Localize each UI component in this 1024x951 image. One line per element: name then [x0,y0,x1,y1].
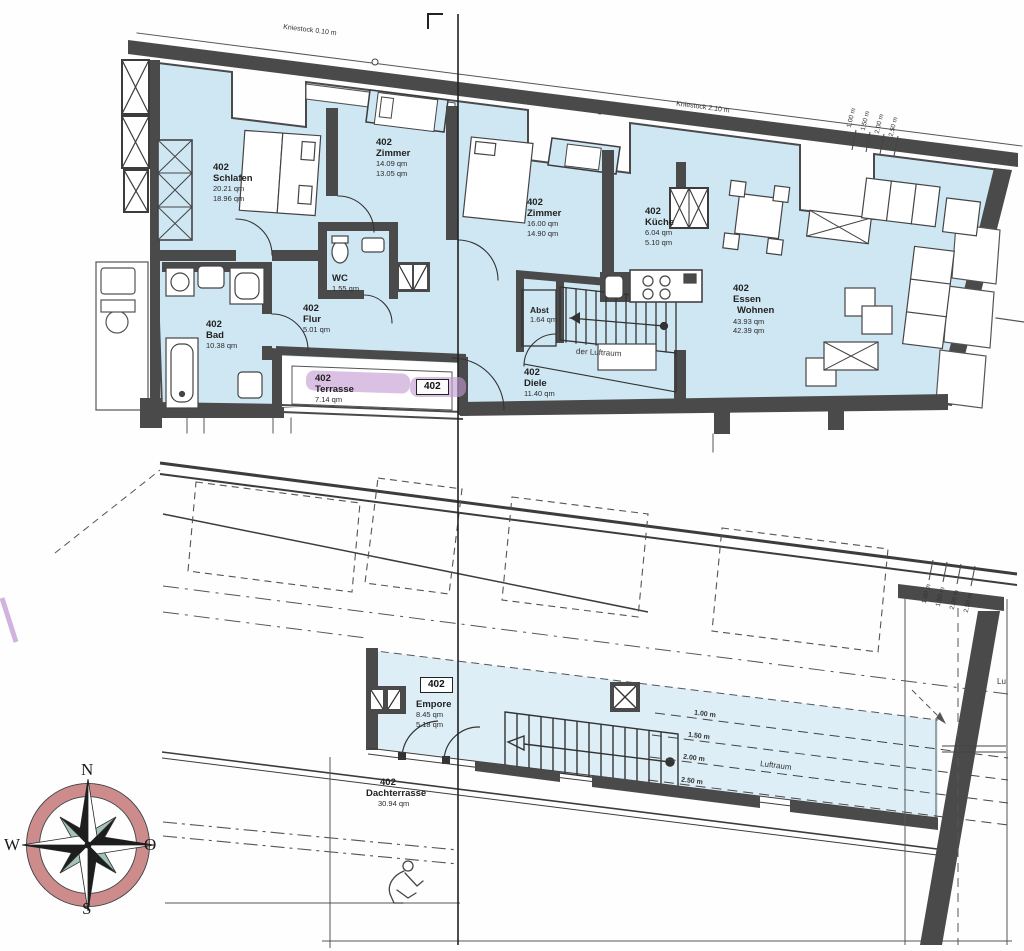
person-sketch [389,861,423,903]
room-label-kueche: 402 Küche 6.04 qm 5.10 qm [645,206,674,248]
upper-plan [96,33,1024,452]
luftraum-note-partial: Lu [997,678,1006,686]
shaft-boxes-left [122,60,149,212]
compass-east-label: O [144,836,156,853]
highlighter-mark [2,598,16,642]
room-label-wc: WC 1.55 qm [332,273,359,294]
unit-badge-upper: 402 [416,379,449,395]
room-label-terrasse: 402 Terrasse 7.14 qm [315,373,354,405]
room-label-dachterrasse: 402 Dachterrasse 30.94 qm [366,777,426,809]
compass-north-label: N [81,761,93,778]
room-label-diele: 402 Diele 11.40 qm [524,367,555,399]
floor-plan-drawing [0,0,1024,951]
room-label-flur: 402 Flur 5.01 qm [303,303,330,335]
room-label-abst: Abst 1.64 qm [530,305,557,325]
shaft-box-empore-left [366,686,406,714]
dormer-outlines [188,478,888,652]
shaft-box-wc [396,262,430,292]
shaft-box-kueche [670,188,708,228]
neighbour-bath [96,262,148,410]
room-label-zimmer2: 402 Zimmer 16.00 qm 14.90 qm [527,197,561,239]
room-label-empore: Empore 8.45 qm 5.18 qm [416,699,451,730]
floorplan-page: Kniestock 0.10 m Kniestock 2.10 m 1.00 m… [0,0,1024,951]
room-label-zimmer1: 402 Zimmer 14.09 qm 13.05 qm [376,137,410,179]
room-label-schlafen: 402 Schlafen 20.21 qm 18.96 qm [213,162,253,204]
unit-badge-lower: 402 [420,677,453,693]
compass-south-label: S [82,900,91,917]
shaft-box-empore-mid [610,682,640,712]
compass-rose [22,779,154,911]
room-label-bad: 402 Bad 10.38 qm [206,319,237,351]
room-label-essen-wohnen: 402 Essen Wohnen 43.93 qm 42.39 qm [733,283,774,336]
compass-west-label: W [4,836,20,853]
